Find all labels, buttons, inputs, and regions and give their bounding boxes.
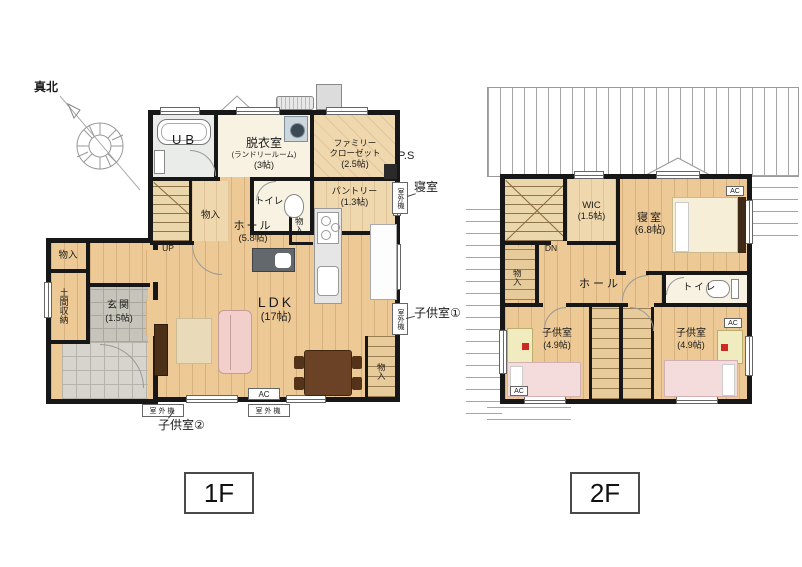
window bbox=[676, 396, 718, 404]
chair-icon bbox=[294, 377, 304, 390]
ac-label: AC bbox=[730, 188, 740, 195]
label-kodomo-right-size: (4.9帖) bbox=[662, 340, 720, 351]
ac-box-1f: AC bbox=[248, 388, 280, 400]
window bbox=[745, 336, 753, 376]
dining-table-icon bbox=[304, 350, 352, 396]
label-genkan-size: (1.5帖) bbox=[90, 313, 148, 324]
floor-tag-1f: 1F bbox=[184, 472, 254, 514]
label-datsuishitsu-sub: (ランドリールーム) bbox=[218, 150, 310, 159]
stairs-1f bbox=[153, 181, 189, 241]
label-dn: DN bbox=[538, 243, 564, 253]
wall bbox=[86, 283, 150, 287]
wall bbox=[500, 303, 543, 307]
ac-box-2f: AC bbox=[726, 186, 744, 196]
wall bbox=[616, 179, 620, 275]
roof-top bbox=[487, 87, 799, 177]
bed-icon bbox=[664, 360, 738, 397]
headboard-icon bbox=[738, 197, 746, 253]
label-monoire-left: 物入 bbox=[50, 250, 86, 261]
label-famiclo-size: (2.5帖) bbox=[316, 159, 394, 170]
wall bbox=[662, 275, 666, 305]
window bbox=[160, 107, 200, 115]
washbasin-icon bbox=[154, 150, 165, 174]
callout-kodomo2: 子供室② bbox=[158, 418, 224, 432]
chair-icon bbox=[352, 356, 362, 369]
label-shinshitsu-size: (6.8帖) bbox=[622, 225, 678, 237]
label-pantry: パントリー bbox=[314, 186, 395, 197]
window bbox=[286, 395, 326, 403]
ac-box-2f: AC bbox=[510, 386, 528, 396]
label-hall-1f-size: (5.8帖) bbox=[222, 233, 284, 244]
window bbox=[656, 171, 700, 179]
outdoor-unit-icon bbox=[276, 96, 314, 110]
outdoor-unit-box: 室外機 bbox=[248, 404, 290, 417]
outdoor-unit-label: 室外機 bbox=[395, 309, 405, 330]
window bbox=[499, 330, 507, 374]
label-datsuishitsu: 脱衣室 bbox=[218, 136, 310, 150]
window bbox=[236, 107, 280, 115]
window bbox=[326, 107, 368, 115]
label-wic: WIC bbox=[567, 200, 616, 211]
wall bbox=[50, 269, 90, 273]
label-monoire-kitchen: 物入 bbox=[294, 206, 304, 244]
leader-line bbox=[407, 193, 416, 197]
refrigerator-space bbox=[370, 224, 397, 300]
window bbox=[44, 282, 52, 318]
label-shinshitsu: 寝室 bbox=[622, 212, 678, 225]
wall bbox=[619, 307, 623, 399]
floor-tag-1f-label: 1F bbox=[204, 478, 234, 509]
label-ldk-size: (17帖) bbox=[244, 311, 308, 324]
label-hall-2f: ホール bbox=[570, 278, 630, 291]
vanity-icon bbox=[252, 248, 295, 272]
ac-box-2f: AC bbox=[724, 318, 742, 328]
label-ps: P.S bbox=[398, 150, 432, 163]
ac-label: AC bbox=[728, 320, 738, 327]
floor-tag-2f-label: 2F bbox=[590, 478, 620, 509]
toilet-tank bbox=[731, 279, 739, 299]
closet-left bbox=[592, 307, 619, 399]
outdoor-unit-label: 室外機 bbox=[256, 406, 283, 416]
wall bbox=[535, 245, 539, 303]
outdoor-unit-label: 室外機 bbox=[395, 188, 405, 209]
label-datsuishitsu-size: (3帖) bbox=[218, 160, 310, 171]
label-monoire-2f: 物入 bbox=[512, 258, 522, 296]
roof-right bbox=[752, 172, 798, 236]
outdoor-unit-box: 室外機 bbox=[392, 182, 408, 214]
stove-icon bbox=[317, 212, 339, 244]
roof-bottom bbox=[487, 406, 571, 420]
wall bbox=[365, 336, 368, 397]
wall bbox=[86, 242, 90, 344]
label-doma: 土間収納 bbox=[57, 288, 70, 314]
bed-icon bbox=[672, 197, 738, 253]
floor-tag-2f: 2F bbox=[570, 472, 640, 514]
floor-plan-page: 真北 bbox=[0, 0, 802, 567]
label-kodomo-left-size: (4.9帖) bbox=[528, 340, 586, 351]
label-genkan: 玄関 bbox=[90, 300, 148, 312]
label-famiclo-2: クローゼット bbox=[316, 148, 394, 158]
rug-icon bbox=[176, 318, 212, 364]
label-pantry-size: (1.3帖) bbox=[314, 197, 395, 208]
label-famiclo-1: ファミリー bbox=[316, 138, 394, 148]
label-ldk: LDK bbox=[244, 294, 308, 311]
label-monoire-ldk: 物入 bbox=[376, 352, 386, 390]
outdoor-unit-box: 室外機 bbox=[142, 404, 184, 417]
label-toilet-2f: トイレ bbox=[676, 282, 724, 293]
wall bbox=[616, 271, 626, 275]
wall bbox=[50, 340, 90, 344]
sink-icon bbox=[317, 266, 339, 296]
label-hall-1f: ホール bbox=[222, 220, 284, 233]
wall bbox=[589, 307, 592, 399]
label-wic-size: (1.5帖) bbox=[567, 211, 616, 222]
ac-label: AC bbox=[514, 388, 524, 395]
label-ub: UB bbox=[160, 132, 210, 148]
label-up: UP bbox=[153, 243, 183, 253]
desk-icon bbox=[717, 330, 743, 364]
label-kodomo-right: 子供室 bbox=[662, 328, 720, 340]
window bbox=[524, 396, 566, 404]
window bbox=[745, 200, 753, 244]
callout-shinshitsu: 寝室 bbox=[414, 180, 458, 194]
ac-label: AC bbox=[258, 390, 269, 399]
roof-left bbox=[466, 206, 502, 414]
label-kodomo-left: 子供室 bbox=[528, 328, 586, 340]
wall bbox=[654, 303, 752, 307]
compass-icon bbox=[40, 88, 150, 198]
window bbox=[574, 171, 604, 179]
chair-icon bbox=[352, 377, 362, 390]
wall bbox=[150, 177, 220, 181]
door-opening bbox=[146, 250, 158, 282]
window bbox=[186, 395, 238, 403]
tv-board-icon bbox=[154, 324, 168, 376]
wall bbox=[567, 241, 616, 245]
chair-icon bbox=[294, 356, 304, 369]
callout-kodomo1: 子供室① bbox=[414, 306, 474, 320]
label-toilet-1f: トイレ bbox=[252, 196, 286, 207]
